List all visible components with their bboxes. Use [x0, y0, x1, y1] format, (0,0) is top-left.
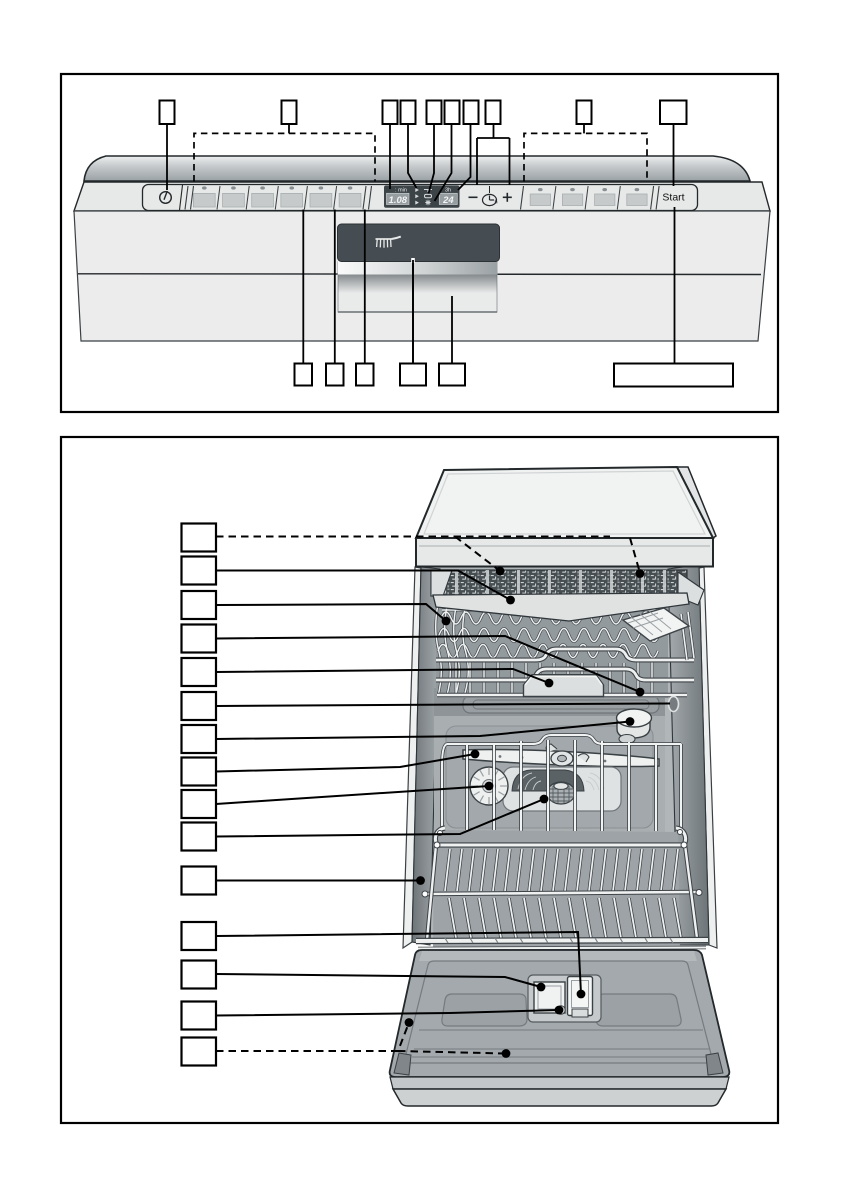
svg-text:3h: 3h [445, 188, 451, 194]
svg-text:: min: : min [395, 188, 407, 194]
svg-text:1.08: 1.08 [389, 195, 408, 206]
svg-text:h: h [495, 200, 498, 206]
svg-text:Start: Start [662, 191, 684, 203]
svg-text:24: 24 [442, 195, 454, 206]
